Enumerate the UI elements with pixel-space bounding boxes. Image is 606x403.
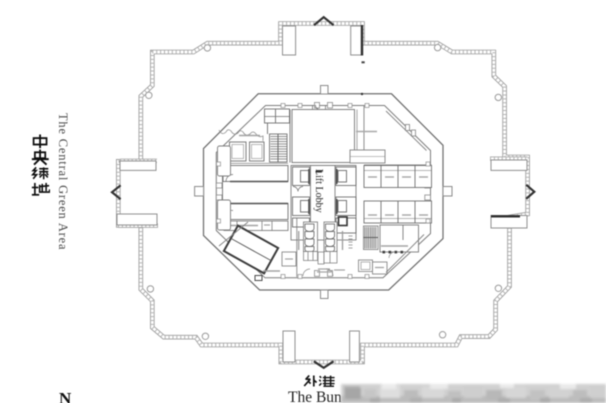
svg-text:Lift Lobby: Lift Lobby [313,169,324,213]
